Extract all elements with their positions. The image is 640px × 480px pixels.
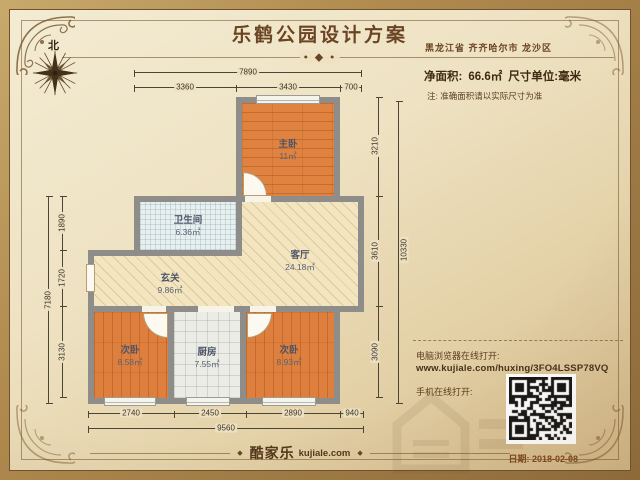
room-label-kitchen: 厨房7.55㎡ — [194, 347, 219, 370]
share-url: www.kujiale.com/huxing/3FO4LSSP78VQ — [416, 363, 608, 374]
room-label-bedroom-right: 次卧8.93㎡ — [276, 345, 301, 368]
dim-label: 7180 — [44, 289, 53, 311]
footer-brand-row: ◆ 酷家乐 kujiale.com ◆ — [90, 444, 510, 462]
dim-label: 3130 — [58, 341, 67, 363]
share-block: 电脑浏览器在线打开: www.kujiale.com/huxing/3FO4LS… — [413, 340, 623, 341]
dim-label: 9560 — [215, 424, 237, 433]
dim-label: 10330 — [400, 237, 409, 263]
compass-icon — [31, 49, 79, 97]
door-opening — [142, 306, 166, 312]
divider-ornament-icon: • ◆ • — [300, 51, 340, 64]
qr-code — [509, 377, 572, 440]
net-area-label: 净面积: — [424, 71, 462, 83]
room-label-hall: 玄关9.86㎡ — [157, 273, 182, 296]
dim-label: 3090 — [371, 341, 380, 363]
room-label-living: 客厅24.18㎡ — [285, 250, 315, 273]
floorplan-page: 乐鹤公园设计方案 • ◆ • 黑龙江省 齐齐哈尔市 龙沙区 净面积:66.6㎡尺… — [0, 0, 640, 480]
dim-label: 940 — [343, 409, 360, 418]
unit-label: 尺寸单位:毫米 — [508, 71, 581, 83]
dim-label: 700 — [342, 83, 359, 92]
share-pc-label: 电脑浏览器在线打开: — [416, 349, 500, 362]
corner-flourish-icon — [11, 405, 75, 469]
footer-bullet-icon: ◆ — [237, 449, 242, 457]
net-area-line: 净面积:66.6㎡尺寸单位:毫米 — [424, 68, 587, 84]
footer-bullet-icon: ◆ — [357, 449, 362, 457]
dim-label: 3430 — [277, 83, 299, 92]
share-mobile-label: 手机在线打开: — [416, 385, 473, 398]
net-area-value: 66.6㎡ — [468, 71, 502, 83]
footer-line — [90, 453, 230, 454]
dim-line-top-segments — [134, 87, 362, 88]
door-opening — [198, 306, 234, 312]
dim-label: 2890 — [282, 409, 304, 418]
door-opening — [245, 196, 271, 202]
project-location: 黑龙江省 齐齐哈尔市 龙沙区 — [425, 41, 552, 54]
dim-label: 3360 — [174, 83, 196, 92]
window — [186, 397, 230, 406]
dim-label: 2740 — [120, 409, 142, 418]
date-label: 日期: 2018-02-08 — [508, 452, 578, 465]
dim-label: 2450 — [199, 409, 221, 418]
brand-logo: 酷家乐 — [250, 443, 295, 463]
room-label-bathroom: 卫生间6.36㎡ — [174, 215, 203, 238]
room-label-master: 主卧11㎡ — [278, 139, 297, 162]
area-note: 注: 准确面积请以实际尺寸为准 — [427, 90, 542, 102]
window — [104, 397, 156, 406]
dim-label: 1720 — [58, 267, 67, 289]
window — [262, 397, 316, 406]
dim-label: 3210 — [371, 135, 380, 157]
door-opening — [250, 306, 276, 312]
wall — [88, 250, 140, 256]
qr-code-container — [506, 374, 576, 444]
window — [256, 95, 320, 104]
dim-label: 1890 — [58, 212, 67, 234]
footer-line — [370, 453, 510, 454]
brand-site: kujiale.com — [299, 448, 351, 459]
room-label-bedroom-left: 次卧8.58㎡ — [117, 345, 142, 368]
entry-door — [86, 264, 95, 292]
dim-label: 7890 — [237, 68, 259, 77]
dim-label: 3610 — [371, 240, 380, 262]
wall — [358, 196, 364, 312]
